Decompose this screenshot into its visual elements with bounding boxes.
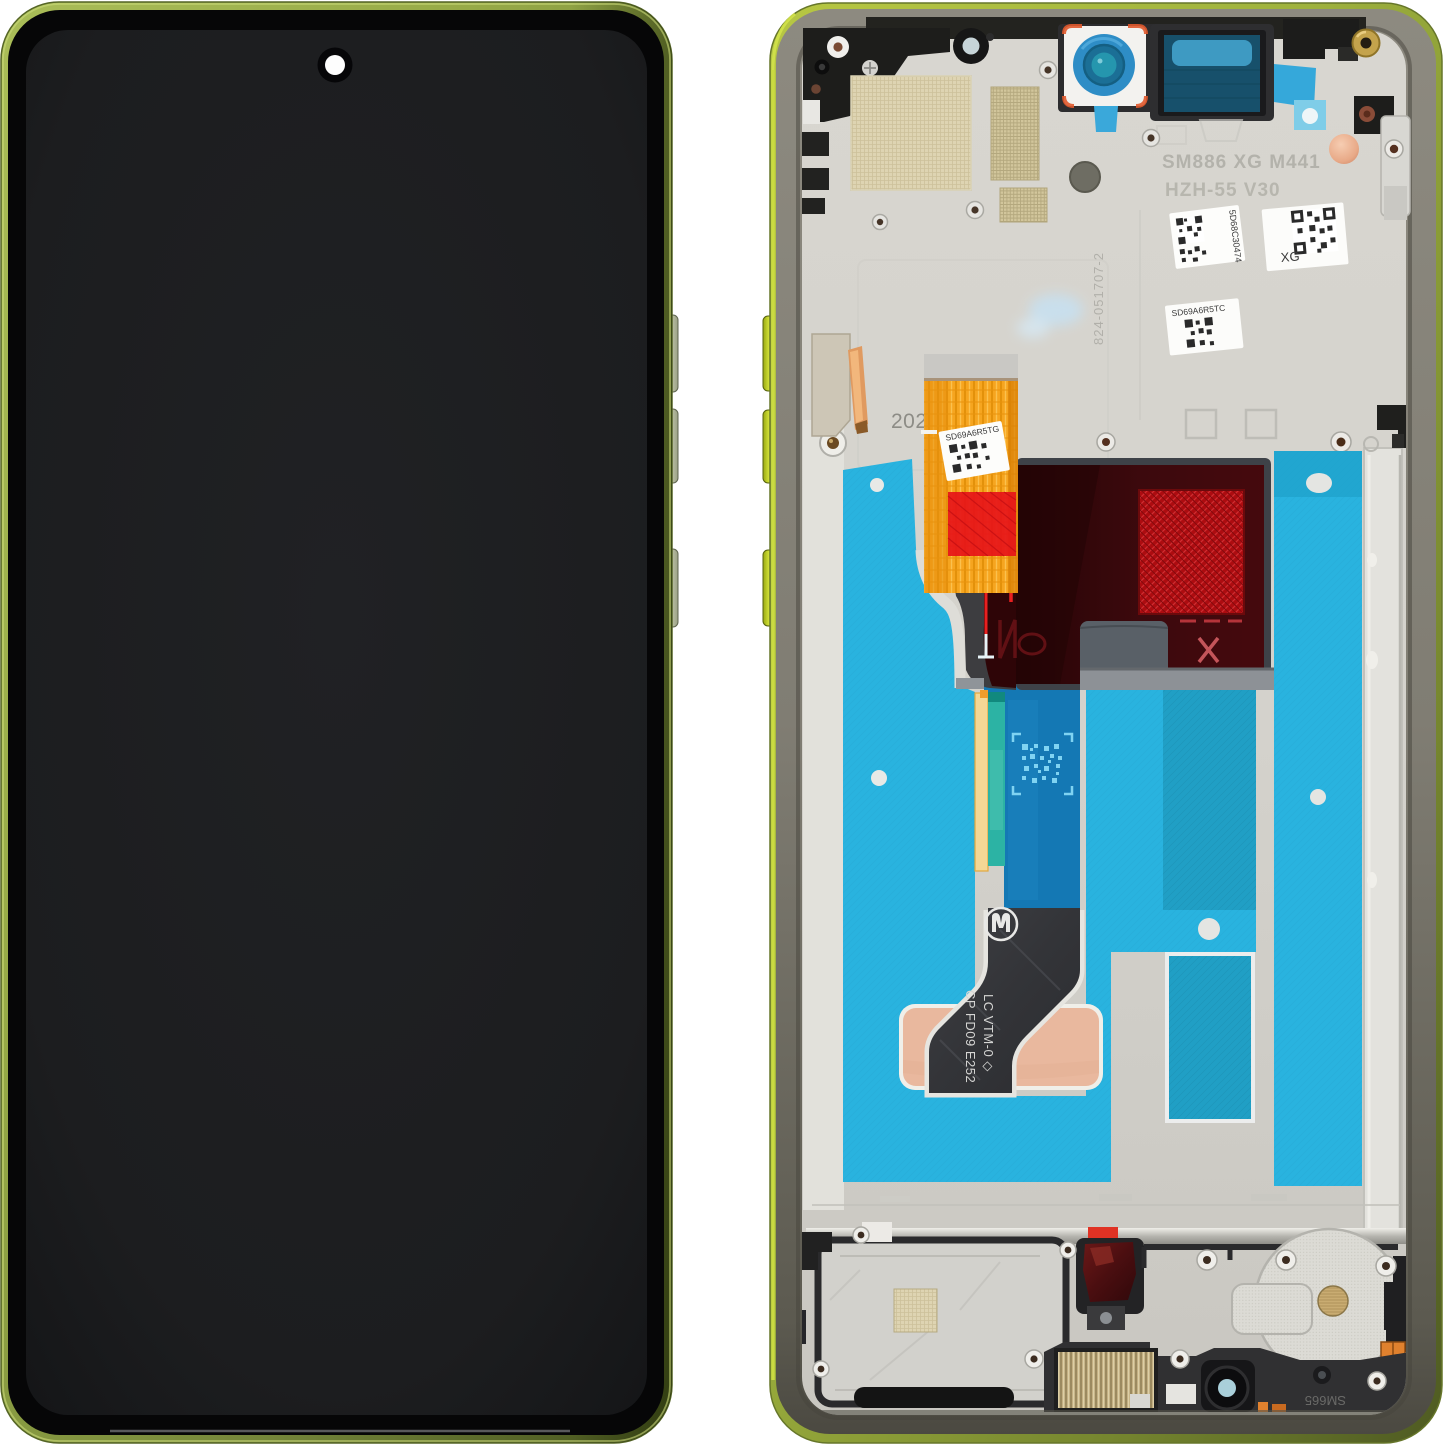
svg-text:HZH-55 V30: HZH-55 V30 xyxy=(1165,180,1281,201)
svg-text:LC VTM-0 ◇: LC VTM-0 ◇ xyxy=(981,994,996,1072)
svg-text:XG: XG xyxy=(1280,248,1300,265)
svg-text:824-051707-2: 824-051707-2 xyxy=(1091,252,1106,345)
svg-text:SM886 XG M441: SM886 XG M441 xyxy=(1162,152,1321,173)
svg-text:SM665: SM665 xyxy=(1305,1393,1346,1408)
svg-text:CP FD09 E252: CP FD09 E252 xyxy=(963,990,978,1083)
